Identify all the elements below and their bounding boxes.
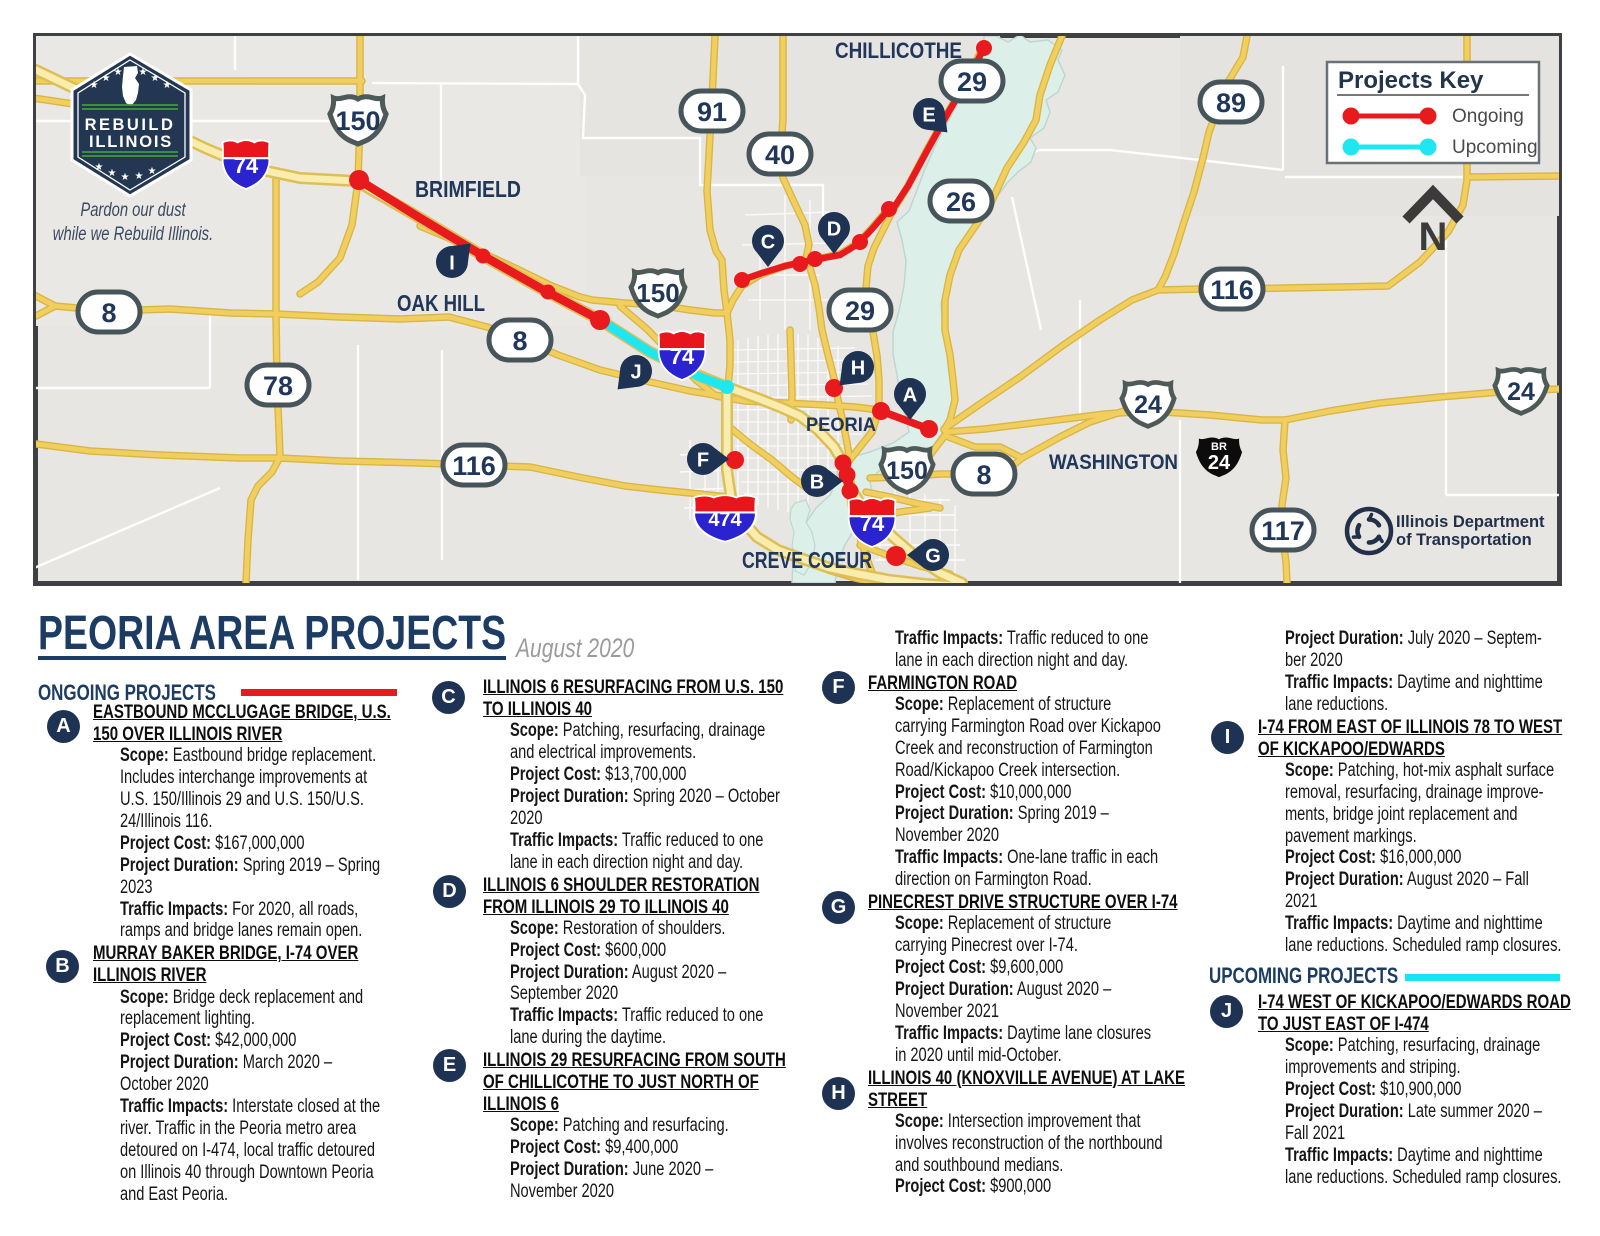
svg-text:OAK HILL: OAK HILL	[397, 290, 485, 316]
svg-text:474: 474	[708, 509, 742, 531]
svg-text:29: 29	[957, 67, 987, 97]
svg-text:150: 150	[335, 106, 380, 136]
svg-text:ILLINOIS: ILLINOIS	[89, 133, 173, 151]
svg-text:Ongoing: Ongoing	[1452, 106, 1524, 127]
svg-text:CHILLICOTHE: CHILLICOTHE	[835, 38, 962, 63]
svg-text:★: ★	[108, 168, 117, 179]
svg-text:Illinois Department: Illinois Department	[1396, 513, 1545, 531]
svg-text:8: 8	[976, 460, 991, 490]
svg-text:89: 89	[1216, 88, 1246, 118]
svg-text:while we Rebuild Illinois.: while we Rebuild Illinois.	[53, 223, 213, 244]
svg-text:150: 150	[886, 457, 928, 485]
svg-text:BRIMFIELD: BRIMFIELD	[415, 176, 521, 202]
svg-text:150: 150	[636, 278, 679, 308]
svg-text:91: 91	[697, 97, 727, 127]
svg-text:★: ★	[151, 73, 160, 84]
svg-text:B: B	[810, 472, 824, 494]
svg-text:A: A	[903, 385, 917, 407]
svg-text:26: 26	[946, 187, 976, 217]
svg-text:D: D	[827, 219, 841, 241]
svg-text:116: 116	[1210, 275, 1254, 305]
svg-text:24: 24	[1134, 391, 1162, 419]
svg-text:★: ★	[102, 73, 111, 84]
svg-text:G: G	[925, 546, 941, 568]
svg-text:74: 74	[234, 153, 259, 178]
svg-text:40: 40	[765, 140, 795, 170]
svg-text:E: E	[922, 105, 935, 127]
svg-text:H: H	[851, 358, 865, 380]
svg-text:WASHINGTON: WASHINGTON	[1049, 451, 1178, 474]
svg-text:Pardon our dust: Pardon our dust	[80, 199, 186, 220]
svg-text:★: ★	[114, 67, 123, 78]
svg-text:CREVE COEUR: CREVE COEUR	[742, 547, 872, 573]
svg-text:117: 117	[1261, 516, 1305, 546]
svg-text:REBUILD: REBUILD	[85, 116, 176, 134]
svg-text:24: 24	[1208, 452, 1231, 474]
svg-text:74: 74	[670, 344, 695, 369]
svg-text:24: 24	[1507, 378, 1535, 406]
svg-text:★: ★	[121, 172, 130, 183]
svg-text:of Transportation: of Transportation	[1396, 531, 1532, 549]
svg-text:8: 8	[101, 298, 116, 328]
svg-text:★: ★	[90, 80, 99, 91]
svg-text:Upcoming: Upcoming	[1452, 137, 1538, 158]
svg-text:★: ★	[148, 166, 157, 177]
svg-text:N: N	[1419, 215, 1448, 259]
svg-text:74: 74	[860, 511, 885, 536]
svg-text:C: C	[761, 232, 775, 254]
svg-text:29: 29	[845, 296, 875, 326]
svg-text:★: ★	[95, 162, 104, 173]
svg-text:Projects Key: Projects Key	[1338, 67, 1484, 94]
svg-text:J: J	[630, 362, 641, 384]
svg-text:116: 116	[452, 451, 496, 481]
svg-text:★: ★	[139, 67, 148, 78]
svg-text:★: ★	[163, 80, 172, 91]
svg-text:★: ★	[135, 171, 144, 182]
svg-text:8: 8	[512, 326, 527, 356]
svg-text:F: F	[697, 450, 709, 472]
svg-text:78: 78	[263, 371, 293, 401]
svg-text:PEORIA: PEORIA	[806, 414, 876, 436]
svg-text:I: I	[449, 253, 455, 275]
